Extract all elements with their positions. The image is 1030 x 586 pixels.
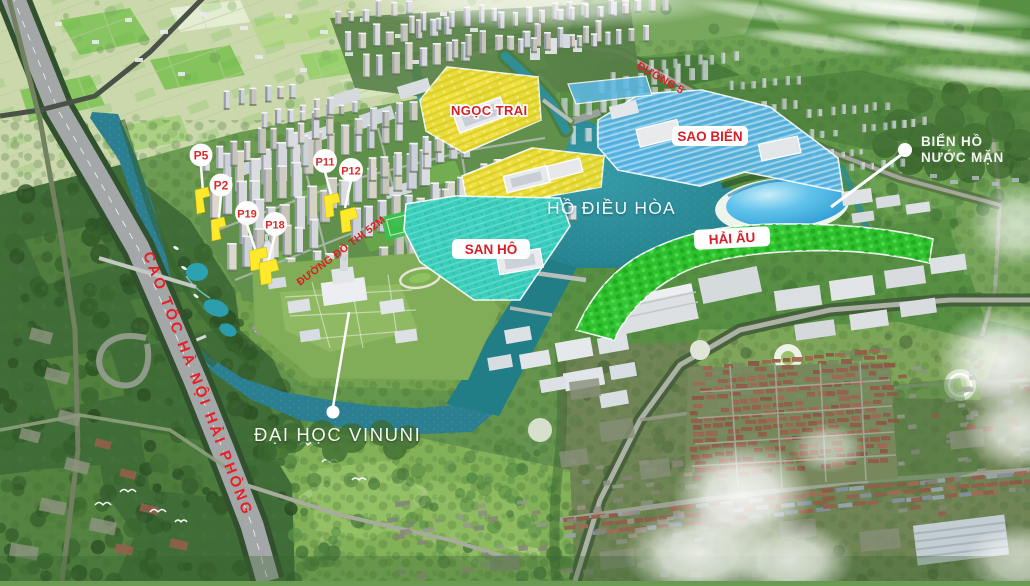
svg-text:NGỌC TRAI: NGỌC TRAI: [451, 103, 528, 118]
svg-text:P11: P11: [316, 157, 335, 169]
svg-text:P12: P12: [341, 166, 361, 178]
svg-text:HẢI ÂU: HẢI ÂU: [708, 230, 755, 247]
svg-text:P2: P2: [214, 179, 229, 193]
svg-text:P5: P5: [194, 149, 209, 163]
svg-text:NƯỚC MẶN: NƯỚC MẶN: [921, 150, 1004, 165]
svg-text:HỒ ĐIỀU HÒA: HỒ ĐIỀU HÒA: [547, 197, 676, 218]
svg-text:SAO BIỂN: SAO BIỂN: [677, 129, 742, 144]
svg-text:BIỂN HỒ: BIỂN HỒ: [921, 134, 983, 149]
svg-text:P18: P18: [265, 220, 285, 232]
svg-text:SAN HÔ: SAN HÔ: [465, 242, 518, 257]
svg-text:ĐẠI HỌC VINUNI: ĐẠI HỌC VINUNI: [254, 424, 421, 445]
svg-text:P19: P19: [237, 209, 257, 221]
